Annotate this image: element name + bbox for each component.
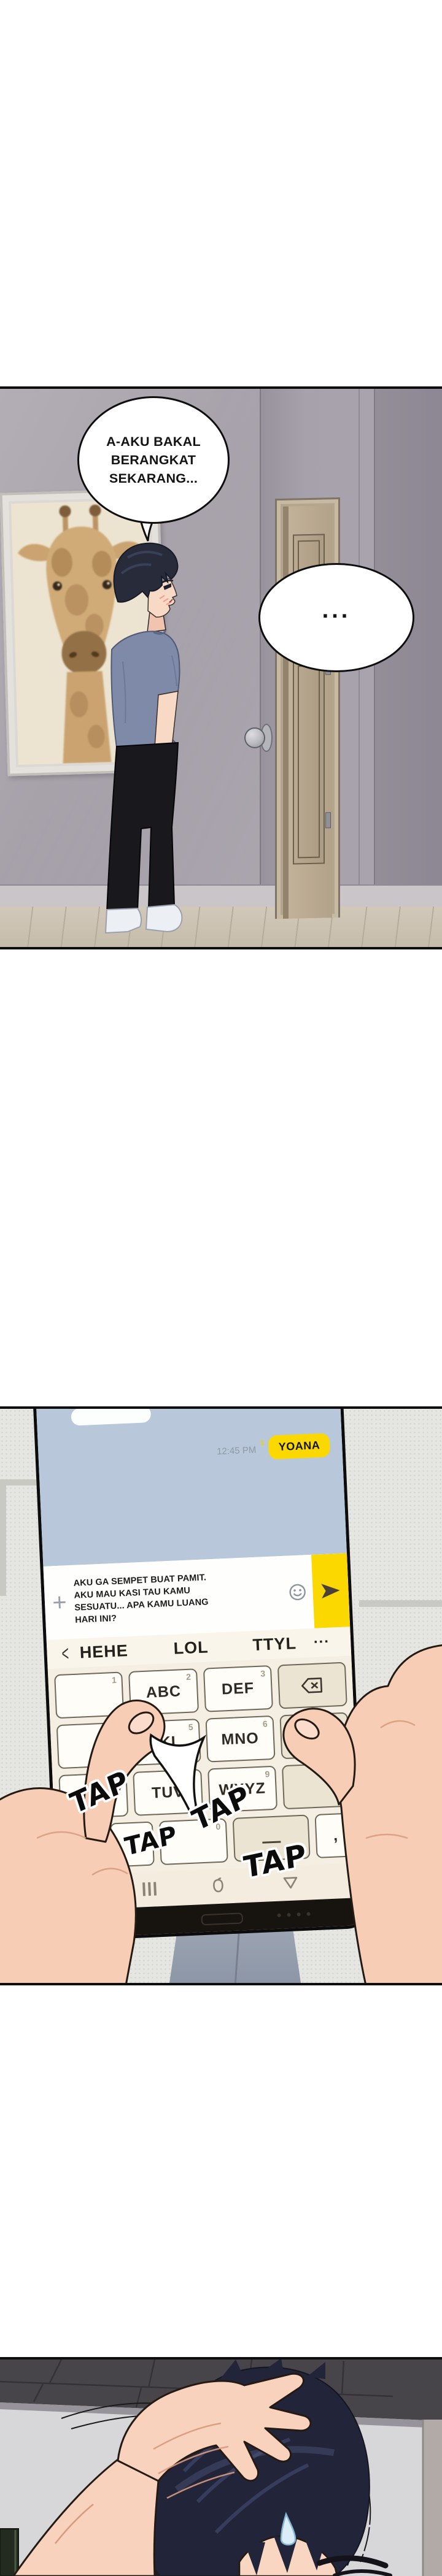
speech-bubble-silence: ...	[258, 563, 414, 672]
panel-head-scratch	[0, 2357, 442, 2576]
standing-man	[86, 539, 190, 947]
speech-line: A-AKU BAKAL	[106, 432, 201, 451]
panel-hallway-scene: A-AKU BAKAL BERANGKAT SEKARANG... ...	[0, 386, 442, 949]
speech-line: BERANGKAT	[111, 451, 196, 469]
speech-bubble-main: A-AKU BAKAL BERANGKAT SEKARANG...	[77, 396, 230, 524]
head-scratch-scene	[0, 2359, 442, 2576]
tap-motion-arrow-icon	[0, 1409, 442, 1983]
baseboard	[0, 884, 442, 908]
door-hinge	[325, 812, 331, 828]
wall-corner-line	[260, 389, 261, 899]
speech-line: SEKARANG...	[109, 469, 198, 488]
door-knob	[244, 727, 265, 748]
wood-floor	[0, 907, 442, 947]
ellipsis-text: ...	[322, 597, 351, 624]
panel-phone-typing: 12:45 PM 1 YOANA + AKU GA SEMPET BUAT PA…	[0, 1406, 442, 1985]
wooden-door	[275, 497, 340, 919]
